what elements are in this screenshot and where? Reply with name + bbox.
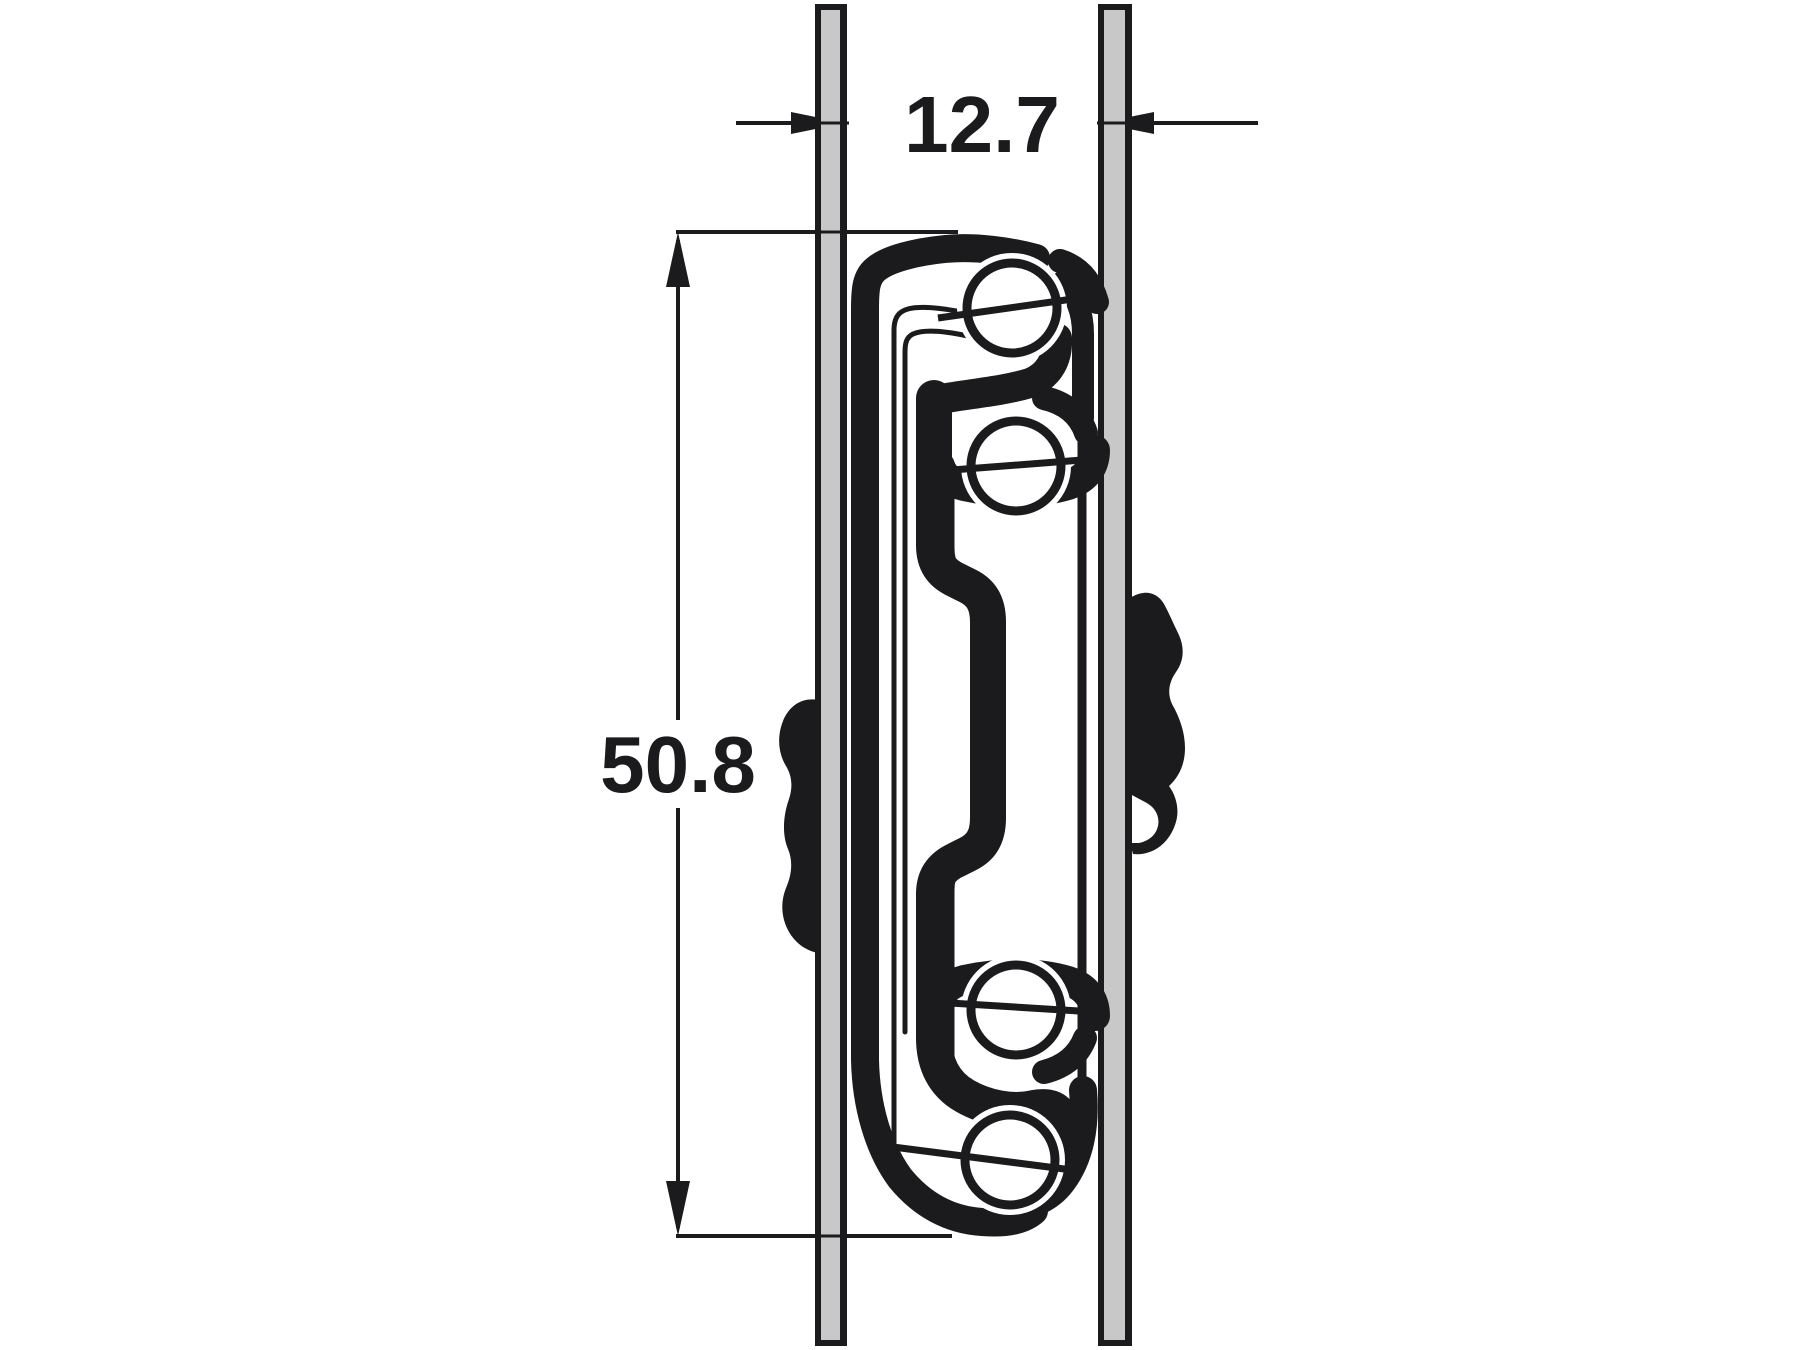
technical-drawing-canvas: 12.7 50.8: [0, 0, 1800, 1350]
panel-right-face: [1104, 10, 1125, 1340]
panel-left-face: [821, 10, 840, 1340]
panel-left: [815, 4, 847, 1346]
drawer-slide-cross-section: 12.7 50.8: [0, 0, 1800, 1350]
panel-right: [1098, 4, 1132, 1346]
mounting-clip-left: [779, 699, 818, 953]
dimension-height-label: 50.8: [600, 720, 756, 809]
dimension-width-label: 12.7: [904, 80, 1060, 169]
